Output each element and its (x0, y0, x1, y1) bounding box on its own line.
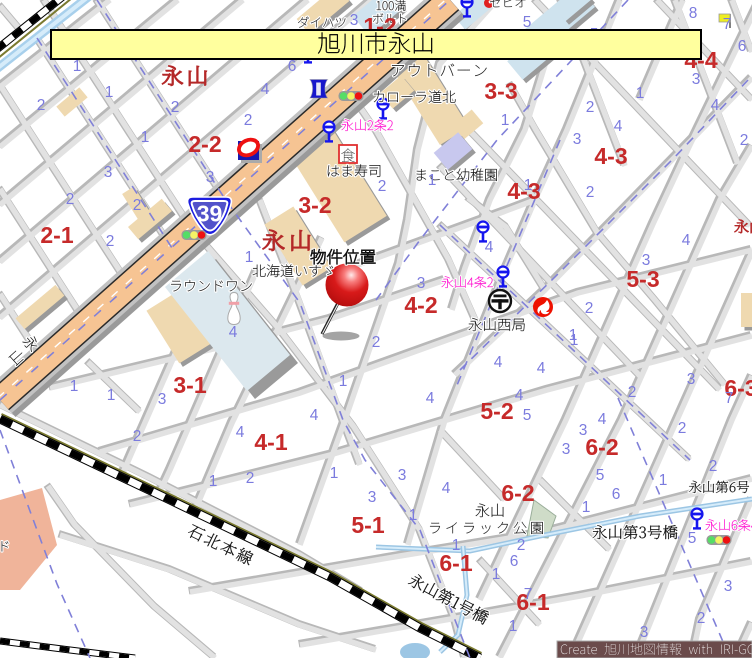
svg-text:6-2: 6-2 (585, 434, 618, 460)
svg-text:2-2: 2-2 (188, 131, 221, 157)
svg-text:4: 4 (310, 407, 319, 424)
svg-text:6: 6 (612, 486, 621, 503)
svg-text:4: 4 (236, 424, 245, 441)
svg-text:4: 4 (261, 81, 270, 98)
svg-text:4: 4 (229, 324, 238, 341)
svg-text:1: 1 (492, 566, 501, 583)
svg-text:2: 2 (697, 610, 706, 627)
svg-text:2: 2 (585, 300, 594, 317)
svg-text:1: 1 (524, 177, 533, 194)
svg-text:3: 3 (579, 422, 588, 439)
svg-text:3: 3 (573, 131, 582, 148)
svg-text:1: 1 (339, 373, 348, 390)
svg-text:1: 1 (501, 112, 510, 129)
svg-text:2: 2 (244, 112, 253, 129)
svg-text:1: 1 (209, 473, 218, 490)
svg-text:3: 3 (350, 12, 359, 29)
svg-text:4: 4 (515, 387, 524, 404)
svg-text:6-2: 6-2 (501, 480, 534, 506)
svg-text:4-1: 4-1 (254, 429, 287, 455)
svg-text:1: 1 (509, 618, 518, 635)
svg-text:5: 5 (523, 407, 532, 424)
svg-text:4: 4 (485, 239, 494, 256)
svg-text:1: 1 (452, 537, 461, 554)
svg-text:39: 39 (197, 201, 223, 227)
svg-text:4: 4 (537, 360, 546, 377)
svg-text:5-3: 5-3 (626, 266, 659, 292)
svg-text:6: 6 (510, 553, 519, 570)
svg-text:8: 8 (689, 5, 698, 22)
svg-text:2: 2 (372, 334, 381, 351)
svg-text:2: 2 (37, 97, 46, 114)
svg-text:1: 1 (107, 387, 116, 404)
svg-text:3: 3 (417, 275, 426, 292)
svg-text:2: 2 (740, 132, 749, 149)
svg-text:1: 1 (659, 472, 668, 489)
svg-text:2: 2 (66, 191, 75, 208)
svg-text:4: 4 (614, 118, 623, 135)
svg-text:3-3: 3-3 (484, 78, 517, 104)
svg-text:4-3: 4-3 (594, 143, 627, 169)
svg-text:2: 2 (709, 458, 718, 475)
svg-text:1: 1 (141, 129, 150, 146)
svg-text:1: 1 (570, 332, 579, 349)
svg-text:3: 3 (724, 578, 733, 595)
svg-text:2: 2 (106, 233, 115, 250)
svg-text:3-1: 3-1 (173, 372, 206, 398)
svg-text:1: 1 (636, 85, 645, 102)
svg-text:4-2: 4-2 (404, 292, 437, 318)
svg-text:1: 1 (582, 499, 591, 516)
svg-text:4: 4 (711, 97, 720, 114)
svg-text:1: 1 (73, 58, 82, 75)
svg-text:3: 3 (687, 371, 696, 388)
svg-text:4: 4 (494, 354, 503, 371)
svg-text:5-1: 5-1 (351, 512, 384, 538)
svg-text:3: 3 (692, 71, 701, 88)
svg-text:7: 7 (723, 16, 732, 33)
svg-text:2: 2 (133, 197, 142, 214)
svg-text:2: 2 (171, 99, 180, 116)
svg-text:2-1: 2-1 (40, 222, 73, 248)
svg-text:2: 2 (628, 384, 637, 401)
svg-text:2: 2 (133, 428, 142, 445)
svg-text:3: 3 (640, 624, 649, 641)
svg-text:3: 3 (562, 441, 571, 458)
svg-text:1: 1 (105, 84, 114, 101)
svg-text:5: 5 (688, 530, 697, 547)
svg-text:7: 7 (524, 586, 533, 603)
svg-text:1: 1 (409, 507, 418, 524)
svg-text:3: 3 (398, 467, 407, 484)
svg-text:6: 6 (738, 38, 747, 55)
svg-text:2: 2 (378, 178, 387, 195)
svg-text:5-2: 5-2 (480, 398, 513, 424)
svg-text:1: 1 (428, 172, 437, 189)
svg-text:2: 2 (586, 99, 595, 116)
svg-text:5: 5 (596, 467, 605, 484)
svg-text:1: 1 (70, 378, 79, 395)
svg-text:2: 2 (246, 470, 255, 487)
svg-text:4: 4 (426, 390, 435, 407)
svg-text:3: 3 (158, 391, 167, 408)
svg-text:3: 3 (206, 169, 215, 186)
svg-text:2: 2 (678, 420, 687, 437)
svg-text:2: 2 (517, 537, 526, 554)
svg-text:3-2: 3-2 (298, 192, 331, 218)
svg-text:3: 3 (642, 252, 651, 269)
svg-text:7: 7 (725, 390, 734, 407)
svg-text:5: 5 (523, 14, 532, 31)
svg-text:1: 1 (330, 465, 339, 482)
svg-text:2: 2 (586, 184, 595, 201)
svg-text:3: 3 (104, 164, 113, 181)
svg-text:4: 4 (442, 480, 451, 497)
svg-text:6-1: 6-1 (516, 589, 549, 615)
svg-text:4: 4 (598, 411, 607, 428)
svg-text:6: 6 (288, 58, 297, 75)
svg-text:3: 3 (368, 489, 377, 506)
svg-text:4: 4 (682, 232, 691, 249)
svg-text:1: 1 (245, 249, 254, 266)
